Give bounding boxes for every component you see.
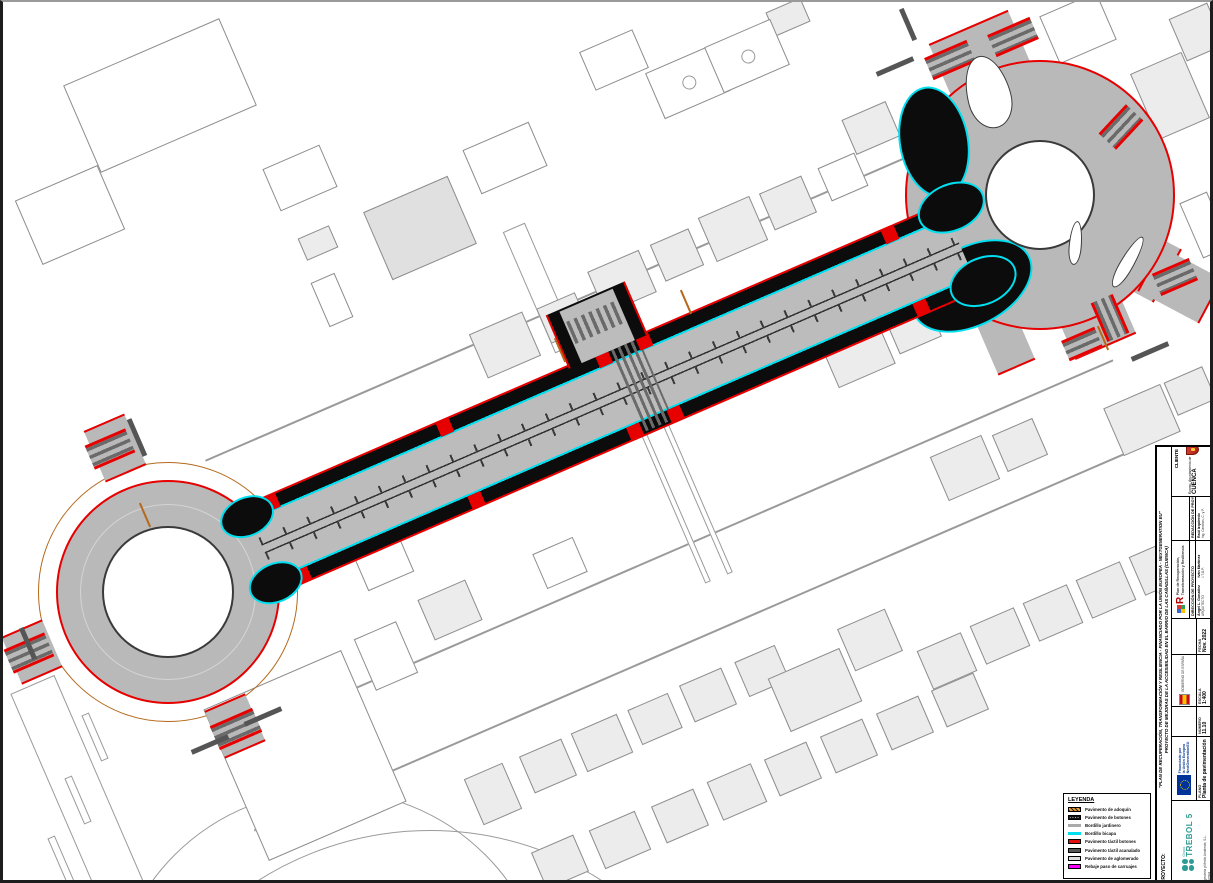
legend-item: Pavimento táctil acanalado: [1068, 846, 1146, 854]
cliente-label: CLIENTE: [1174, 449, 1179, 468]
building: [650, 228, 704, 281]
city-block: [532, 537, 587, 589]
escala-value: 1:400: [1202, 657, 1208, 704]
direccion-header: DIRECCIÓN DE PROYECTO: [1189, 541, 1196, 618]
legend-swatch-tactil-botones: [1068, 839, 1081, 844]
eu-flag-icon: [1177, 775, 1191, 795]
city-block: [462, 122, 547, 195]
building: [768, 648, 863, 732]
building: [970, 607, 1031, 665]
direccion-role-1: ARQUITECTO: [1201, 582, 1205, 617]
legend-swatch-aglomerado: [1068, 856, 1081, 861]
numero-box: NÚMERO 11.10: [1172, 707, 1213, 737]
curb-stub: [899, 7, 917, 40]
building: [841, 101, 900, 155]
building: [837, 609, 903, 672]
cliente-box: CLIENTE Excmo. Ayuntamiento de CUENCA: [1172, 447, 1213, 497]
fecha-value: Nov. 2022: [1202, 621, 1208, 652]
legend-swatch-botones: [1068, 815, 1081, 820]
redaccion-box: REDACCIÓN DE PROYECTO Raúl Izquierdo Ing…: [1172, 497, 1213, 541]
gobierno-espana-text: GOBIERNO DE ESPAÑA: [1182, 656, 1186, 692]
building: [679, 668, 737, 723]
plan-recuperacion-logo: [1177, 605, 1185, 613]
title-block: PROYECTO: "PLAN DE RECUPERACIÓN, TRANSFO…: [1155, 445, 1213, 883]
tactile-pad: [467, 491, 485, 509]
building: [651, 789, 709, 844]
plan-recuperacion-r: R: [1176, 597, 1186, 604]
city-block: [354, 621, 418, 691]
trebol-name: TREBOL 5: [1186, 813, 1194, 856]
eu-text-3: NextGenerationEU: [1186, 742, 1190, 774]
utility-line: [680, 290, 692, 315]
plan-r-text-2: Transformación y Resiliencia: [1181, 546, 1185, 596]
legend-item: Pavimento táctil botones: [1068, 838, 1146, 846]
legend-item: Pavimento de adoquín: [1068, 805, 1146, 813]
proyecto-label: PROYECTO:: [1161, 853, 1167, 883]
building: [930, 435, 1000, 501]
legend-item: Bordillo bicapa: [1068, 830, 1146, 838]
legend-swatch-bordillo-bicapa: [1068, 832, 1081, 835]
cuenca-shield-icon: [1186, 447, 1199, 455]
plan-sheet: LEYENDA Pavimento de adoquín Pavimento d…: [0, 0, 1213, 883]
legend-swatch-bordillo-jardinero: [1068, 824, 1081, 827]
building: [627, 693, 682, 745]
legend-label: Rebaje paso de carruajes: [1085, 864, 1137, 869]
court-circle: [680, 73, 698, 91]
legend-swatch-rebaje: [1068, 864, 1081, 869]
trebol-sub2: Cuenca: [1208, 803, 1212, 883]
building: [876, 696, 934, 751]
legend-swatch-tactil-acanalado: [1068, 848, 1081, 853]
city-block: [1039, 0, 1117, 64]
legend-label: Pavimento de botones: [1085, 815, 1131, 820]
building: [469, 311, 541, 378]
building: [1076, 561, 1137, 619]
city-block: [579, 29, 649, 91]
building: [589, 811, 652, 869]
project-title-row: PROYECTO: "PLAN DE RECUPERACIÓN, TRANSFO…: [1157, 447, 1172, 883]
legend-swatch-adoquin: [1068, 807, 1081, 812]
fecha-box: FECHA Nov. 2022: [1172, 619, 1213, 655]
legend-label: Pavimento táctil acanalado: [1085, 848, 1140, 853]
court-circle: [739, 47, 757, 65]
city-block: [311, 273, 354, 327]
trebol-logo-box: Grupo TREBOL 5 Ingeniería y Medio Ambien…: [1172, 801, 1213, 883]
legend-title: LEYENDA: [1068, 797, 1146, 803]
building: [519, 739, 577, 794]
plano-value: Planta de pavimentación: [1202, 739, 1208, 798]
median-island: [47, 835, 74, 883]
roundabout-island: [102, 526, 234, 658]
legend-item: Rebaje paso de carruajes: [1068, 862, 1146, 870]
legend-box: LEYENDA Pavimento de adoquín Pavimento d…: [1063, 793, 1151, 879]
building: [764, 742, 822, 797]
plano-box: Financiado por la Unión Europea NextGene…: [1172, 737, 1213, 801]
building: [363, 176, 477, 280]
building: [464, 763, 522, 826]
tactile-pad: [626, 422, 644, 440]
legend-item: Bordillo jardinero: [1068, 821, 1146, 829]
site-plan-canvas: [0, 0, 1213, 883]
city-block: [15, 165, 125, 265]
tactile-pad: [912, 298, 930, 316]
legend-label: Pavimento táctil botones: [1085, 839, 1136, 844]
curb-stub: [1131, 341, 1170, 361]
tactile-pad: [881, 225, 899, 243]
legend-label: Bordillo bicapa: [1085, 831, 1116, 836]
city-block: [262, 145, 337, 212]
legend-label: Pavimento de adoquín: [1085, 807, 1131, 812]
building: [571, 714, 634, 772]
direccion-role-2: I.T.O.P.: [1201, 543, 1205, 578]
city-block: [1179, 192, 1213, 259]
tactile-pad: [436, 418, 454, 436]
cliente-line2: CUENCA: [1192, 457, 1198, 494]
legend-item: Pavimento de aglomerado: [1068, 854, 1146, 862]
building: [820, 719, 878, 774]
trebol-clover-icon: [1182, 859, 1194, 871]
building: [1169, 3, 1213, 62]
city-block: [63, 18, 257, 173]
redaccion-role: Ing. Caminos, C. y P.: [1201, 499, 1205, 538]
gobierno-espana-logo: [1179, 694, 1190, 705]
cliente-line1: Excmo. Ayuntamiento de: [1188, 457, 1192, 494]
direccion-box: R Plan de Recuperación, Transformación y…: [1172, 541, 1213, 619]
escala-box: GOBIERNO DE ESPAÑA ESCALA 1:400: [1172, 655, 1213, 707]
legend-item: Pavimento de botones: [1068, 813, 1146, 821]
redaccion-header: REDACCIÓN DE PROYECTO: [1189, 497, 1196, 540]
legend-label: Pavimento de aglomerado: [1085, 856, 1139, 861]
curb-stub: [876, 56, 915, 76]
building: [759, 176, 817, 231]
building: [707, 763, 768, 821]
building: [698, 196, 768, 262]
building: [298, 225, 339, 261]
building: [417, 579, 482, 640]
numero-value: 11.10: [1202, 709, 1208, 734]
legend-label: Bordillo jardinero: [1085, 823, 1121, 828]
project-title-line2: PROYECTO DE MEJORAS DE LA ACCESIBILIDAD …: [1164, 449, 1170, 850]
building: [1023, 584, 1084, 642]
building: [992, 418, 1048, 472]
city-block: [817, 153, 868, 202]
